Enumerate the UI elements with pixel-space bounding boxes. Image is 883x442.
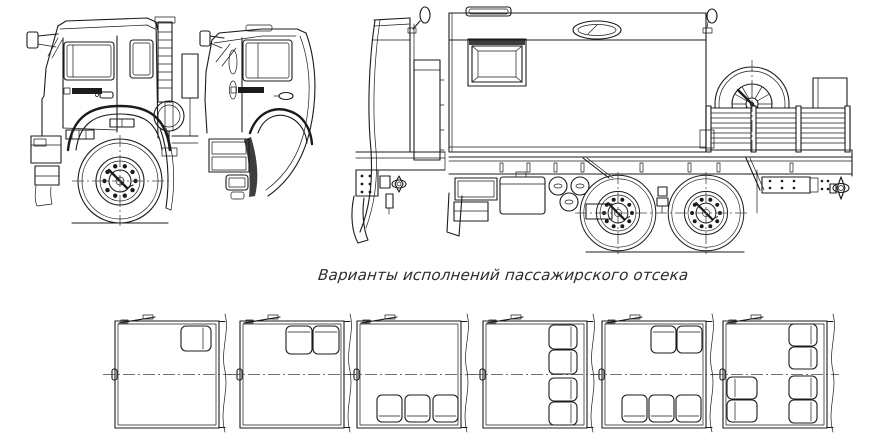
drawing-caption: Варианты исполнений пассажирского отсека — [317, 266, 649, 288]
door-window — [64, 42, 114, 80]
rear-crossmember — [762, 177, 829, 193]
seat — [622, 395, 647, 422]
seat — [549, 325, 577, 349]
break-line — [223, 314, 226, 432]
seat — [549, 350, 577, 374]
seat — [789, 376, 817, 399]
air-cleaner — [154, 101, 184, 156]
seat — [549, 402, 577, 425]
mudflap-3 — [352, 196, 368, 243]
seat — [649, 395, 674, 422]
drawing-svg — [0, 0, 883, 442]
truck-side-view — [447, 7, 852, 254]
towing-pintle — [830, 177, 849, 199]
lower-panel-2 — [209, 139, 249, 199]
roof-vent — [573, 21, 621, 39]
air-tanks — [549, 177, 589, 211]
roof-hatch — [466, 7, 511, 16]
wiper-line — [48, 38, 58, 56]
seat — [181, 326, 211, 351]
variant-1-plan — [103, 314, 231, 432]
van-window — [468, 39, 526, 86]
chassis-frame — [449, 150, 852, 176]
cab-rear-fragment-view — [352, 7, 445, 243]
entry-steps-battery-box — [447, 178, 497, 236]
door-handle-2 — [279, 93, 293, 100]
seat — [789, 324, 817, 346]
stake-side-wall — [706, 106, 850, 152]
van-body — [449, 7, 717, 152]
fuel-tank — [500, 172, 545, 214]
cab-side-view — [27, 17, 198, 226]
seat — [405, 395, 430, 422]
rear-side-window — [130, 40, 153, 78]
variant-6-plan — [711, 314, 839, 432]
break-line — [465, 314, 468, 432]
hitch-bracket — [380, 176, 406, 214]
cab-door-view — [200, 25, 315, 199]
side-molding — [72, 88, 102, 94]
break-line — [831, 314, 834, 432]
snorkel-box — [182, 54, 198, 98]
seat — [789, 347, 817, 369]
door-window-2 — [243, 40, 292, 81]
cab-mudflap — [160, 128, 168, 208]
rear-panel — [414, 60, 444, 160]
seat — [651, 326, 676, 353]
break-line — [710, 314, 713, 432]
variant-3-plan — [345, 314, 473, 432]
variant-5-plan — [590, 314, 718, 432]
seat — [433, 395, 458, 422]
technical-drawing-canvas: Варианты исполнений пассажирского отсека — [0, 0, 883, 442]
variant-4-plan — [471, 314, 599, 432]
seat — [377, 395, 402, 422]
seat — [727, 400, 757, 422]
seat — [789, 400, 817, 423]
variant-2-plan — [228, 314, 356, 432]
mirror-3 — [408, 7, 430, 33]
seat — [286, 326, 312, 354]
seat — [313, 326, 339, 354]
mirror — [27, 32, 58, 48]
seat — [676, 395, 701, 422]
passenger-compartment-variants — [103, 314, 839, 432]
air-intake-stack — [155, 17, 175, 102]
seat — [677, 326, 702, 353]
break-line — [348, 314, 351, 432]
seat — [549, 378, 577, 401]
front-bumper — [31, 136, 61, 206]
break-line — [591, 314, 594, 432]
cab-back-curve — [360, 20, 375, 232]
fender-2 — [244, 109, 312, 197]
bogie-link — [657, 187, 668, 213]
seat — [727, 377, 757, 399]
